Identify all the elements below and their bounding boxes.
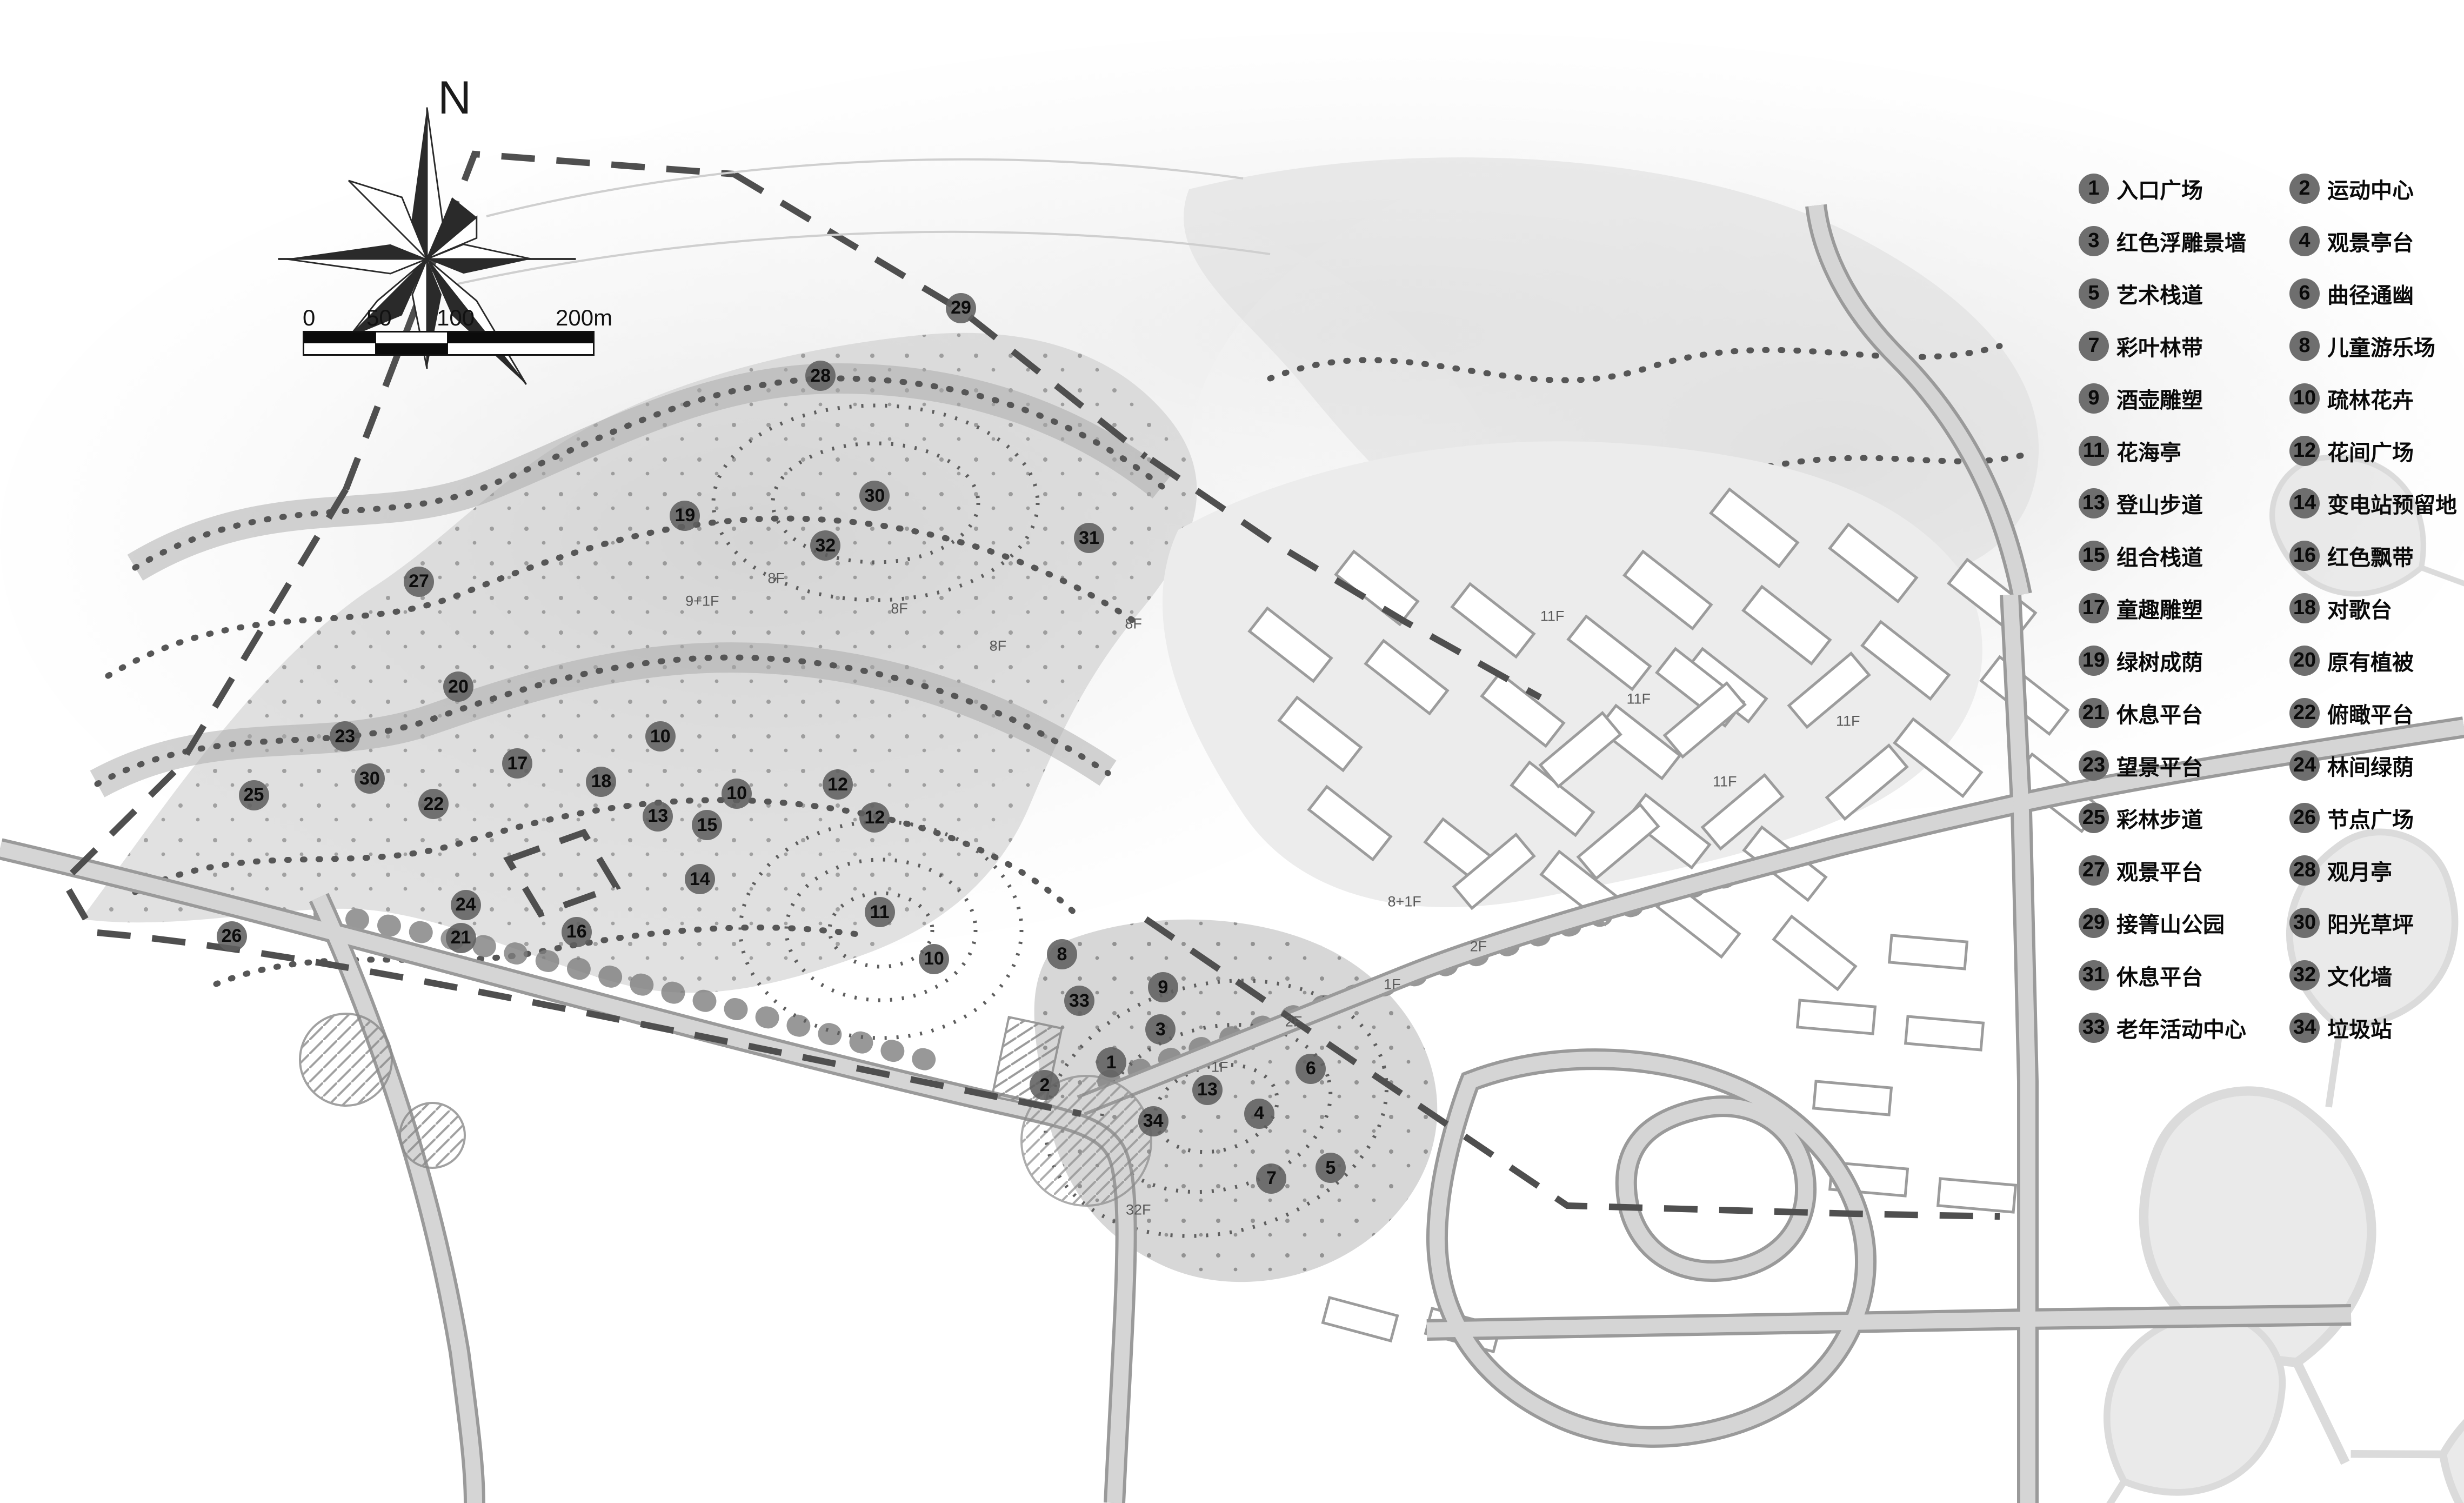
building-storey-label: 32F — [1126, 1201, 1151, 1218]
map-marker: 31 — [1074, 523, 1104, 553]
scale-label-200: 200m — [556, 305, 612, 331]
building-storey-label: 9+1F — [685, 593, 719, 610]
map-marker: 7 — [1256, 1163, 1286, 1194]
building-storey-label: 8F — [990, 638, 1007, 655]
map-marker: 27 — [404, 567, 434, 597]
building-footprint — [1814, 1081, 1892, 1115]
map-marker: 10 — [919, 944, 949, 974]
map-marker: 18 — [586, 767, 616, 797]
building-footprint — [1774, 916, 1855, 989]
plaza-hatched — [300, 1014, 392, 1106]
map-marker: 14 — [685, 864, 715, 894]
building-storey-label: 11F — [1836, 713, 1860, 730]
map-marker: 8 — [1047, 939, 1077, 969]
scale-bar: 0 50 100 200m — [303, 303, 605, 368]
map-marker: 2 — [1030, 1070, 1060, 1100]
map-marker: 9 — [1148, 972, 1178, 1002]
site-plan-page: N 0 50 100 200m 292830192732312023101718… — [0, 0, 2464, 1503]
map-marker: 16 — [562, 917, 592, 947]
building-footprint — [1323, 1298, 1398, 1341]
map-marker: 19 — [670, 501, 700, 531]
scale-label-100: 100 — [437, 305, 475, 331]
building-storey-label: 8F — [767, 570, 785, 587]
map-marker: 5 — [1316, 1153, 1346, 1183]
scale-labels: 0 50 100 200m — [303, 303, 605, 331]
map-marker: 26 — [217, 921, 247, 952]
north-label: N — [438, 71, 472, 125]
map-marker: 4 — [1244, 1099, 1274, 1129]
building-storey-label: 2F — [1470, 939, 1487, 955]
scale-label-50: 50 — [366, 305, 392, 331]
building-footprint — [1798, 1000, 1875, 1034]
building-storey-label: 1F — [1211, 1059, 1228, 1075]
map-marker: 25 — [239, 780, 269, 810]
map-marker: 33 — [1064, 986, 1094, 1016]
map-marker: 12 — [823, 769, 853, 800]
building-footprint — [1889, 935, 1967, 969]
map-marker: 6 — [1296, 1054, 1326, 1084]
map-marker: 24 — [451, 890, 481, 920]
building-footprint — [1906, 1016, 1984, 1050]
map-marker: 29 — [946, 293, 976, 323]
map-marker: 28 — [805, 361, 836, 391]
map-marker: 34 — [1138, 1106, 1168, 1136]
scale-bar-graphic — [303, 331, 595, 356]
map-marker: 11 — [865, 897, 895, 927]
building-footprint — [1938, 1179, 2016, 1212]
map-marker: 21 — [446, 923, 476, 953]
building-storey-label: 8+1F — [1387, 894, 1421, 910]
building-storey-label: 1F — [1384, 976, 1401, 993]
building-storey-label: 2F — [1285, 1014, 1303, 1030]
map-marker: 30 — [355, 763, 385, 794]
building-storey-label: 11F — [1540, 608, 1565, 624]
map-marker: 10 — [722, 779, 752, 809]
road — [1626, 1106, 1806, 1271]
scale-label-0: 0 — [303, 305, 315, 331]
plaza-hatched — [400, 1103, 465, 1168]
map-marker: 32 — [810, 530, 840, 561]
map-marker: 13 — [643, 801, 673, 832]
map-marker: 10 — [645, 721, 676, 751]
building-storey-label: 8F — [1125, 615, 1142, 632]
building-storey-label: 8F — [891, 600, 908, 617]
map-marker: 13 — [1192, 1075, 1223, 1105]
building-storey-label: 11F — [1626, 690, 1651, 707]
building-storey-label: 11F — [1713, 773, 1737, 790]
